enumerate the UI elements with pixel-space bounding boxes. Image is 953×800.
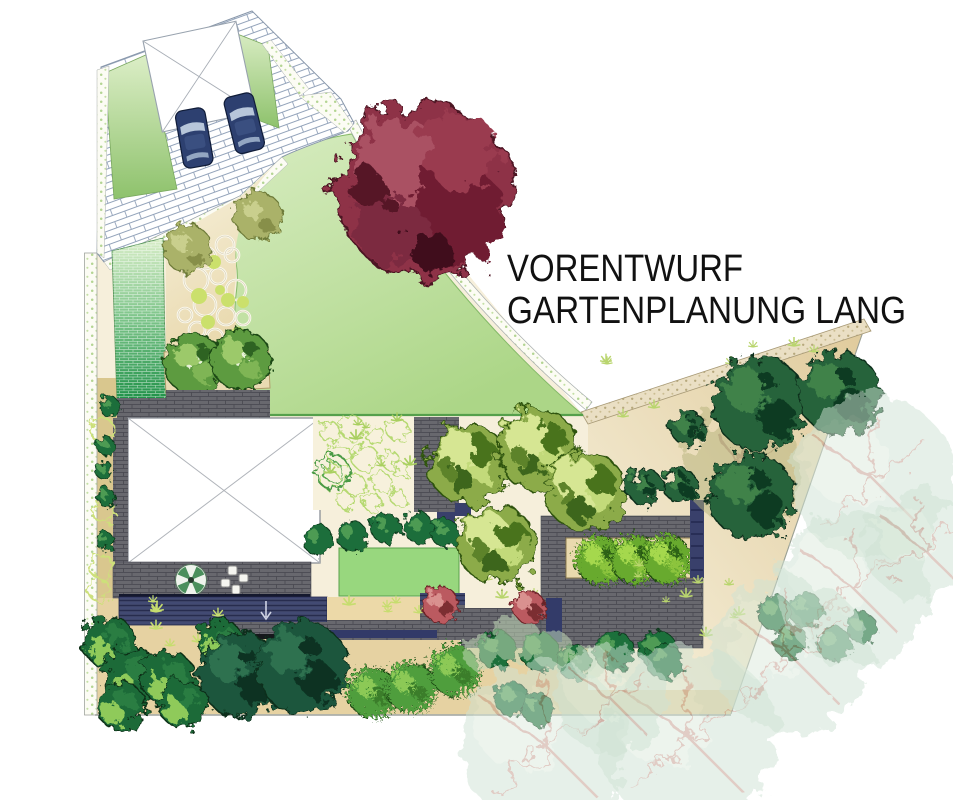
svg-text:GARTENPLANUNG LANG: GARTENPLANUNG LANG <box>507 290 906 332</box>
svg-text:VORENTWURF: VORENTWURF <box>507 248 743 290</box>
